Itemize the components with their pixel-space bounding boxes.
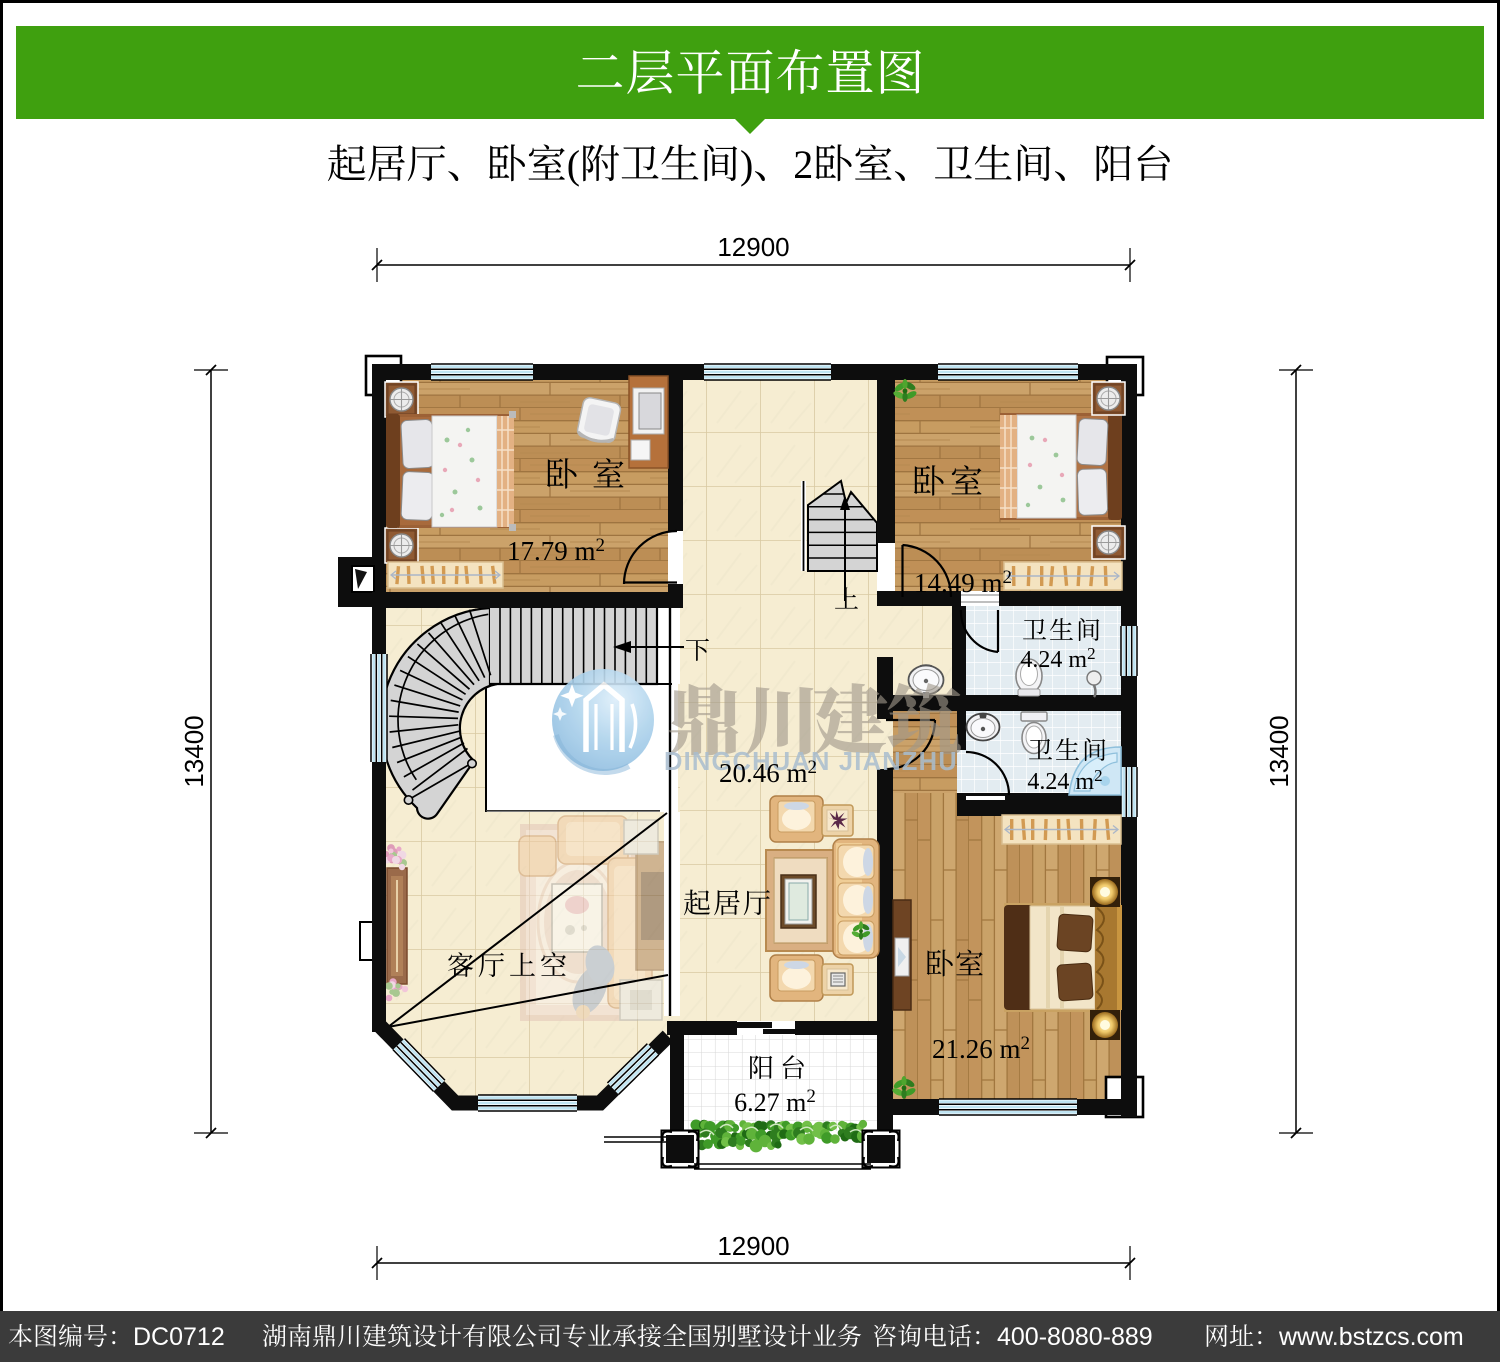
svg-text:12900: 12900 — [717, 1231, 789, 1261]
svg-text:4.24 m2: 4.24 m2 — [1020, 644, 1095, 673]
svg-text:17.79 m2: 17.79 m2 — [507, 535, 605, 566]
svg-text:DC0712: DC0712 — [133, 1323, 225, 1351]
svg-text:6.27 m2: 6.27 m2 — [734, 1086, 816, 1117]
svg-text:400-8080-889: 400-8080-889 — [997, 1323, 1153, 1351]
svg-text:12900: 12900 — [717, 232, 789, 262]
svg-text:13400: 13400 — [1264, 715, 1294, 787]
svg-text:(: ( — [567, 142, 580, 187]
svg-text:www.bstzcs.com: www.bstzcs.com — [1278, 1323, 1464, 1351]
svg-text:14.49 m2: 14.49 m2 — [914, 567, 1012, 598]
svg-text:): ) — [740, 142, 753, 187]
svg-text:2: 2 — [793, 142, 813, 187]
svg-text:4.24 m2: 4.24 m2 — [1027, 766, 1102, 795]
svg-text:13400: 13400 — [179, 715, 209, 787]
svg-text:21.26 m2: 21.26 m2 — [932, 1033, 1030, 1064]
svg-text:20.46 m2: 20.46 m2 — [719, 757, 817, 788]
